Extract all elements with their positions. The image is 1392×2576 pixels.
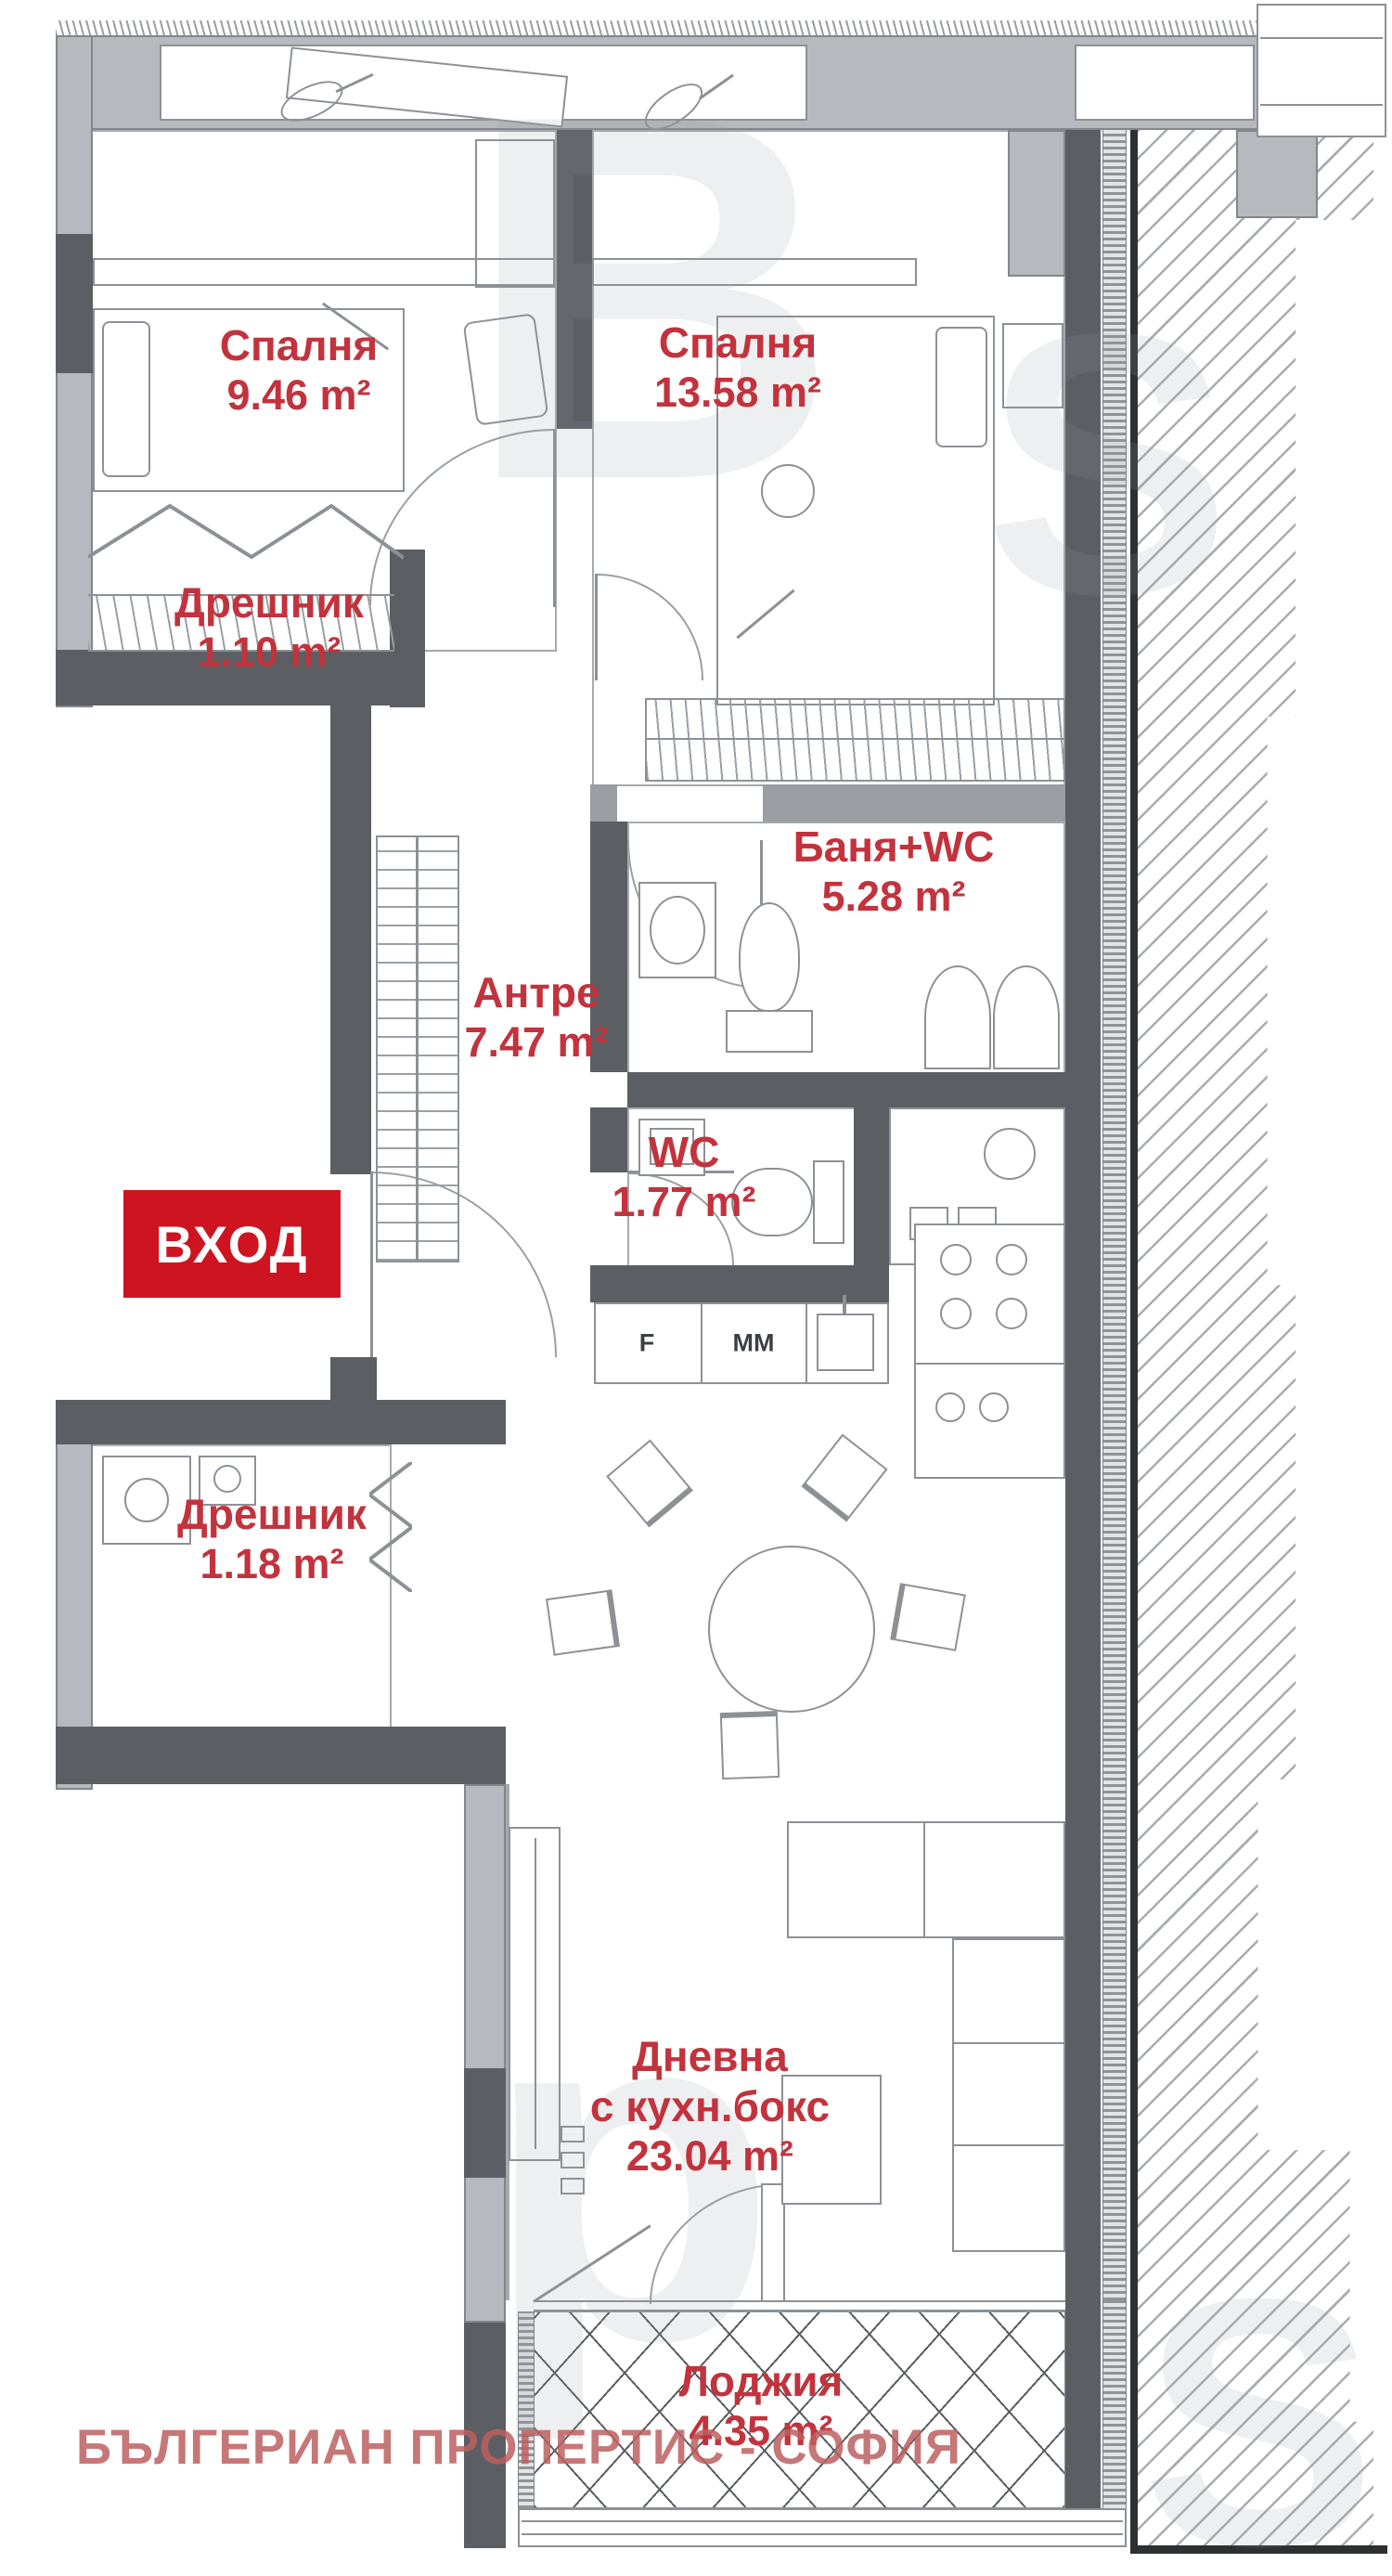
room-area: 13.58 m² — [654, 368, 821, 418]
toilet-bowl-icon — [739, 902, 800, 1012]
faucet-icon — [843, 1295, 846, 1315]
counter-divider — [701, 1302, 702, 1384]
entrance-door-leaf — [370, 1171, 373, 1357]
parapet-line — [522, 2520, 1123, 2522]
room-name: Дрешник — [177, 1489, 367, 1539]
wc-toilet-tank-icon — [813, 1160, 844, 1244]
room-name: Баня+WC — [793, 822, 995, 872]
sofa-top-section — [787, 1821, 1065, 1938]
room-area: 1.18 m² — [177, 1539, 367, 1589]
clothes-zigzag-icon — [88, 497, 404, 562]
room-name: Дневна — [590, 2031, 830, 2081]
room-name: Лоджия — [679, 2356, 844, 2406]
hall-left-exterior-wall — [330, 705, 371, 1174]
right-wall-loggia — [1065, 2300, 1101, 2544]
bedroom2-wall-block — [1008, 130, 1065, 277]
bedroom2-bath-wall-b — [763, 784, 1065, 822]
pillow-icon — [102, 321, 150, 477]
watermark-letter: S — [984, 278, 1231, 650]
chair-icon — [546, 1589, 620, 1655]
shower-curtain-icon — [993, 965, 1060, 1069]
label-hall: Антре 7.47 m² — [464, 967, 608, 1068]
wardrobe-rail-line — [645, 738, 1065, 740]
loggia-parapet-window — [518, 2508, 1127, 2547]
parapet-line — [522, 2533, 1123, 2535]
floor-plan: F MM B S p S Спалня 9.46 m² — [0, 0, 1392, 2576]
room-name: Антре — [464, 967, 608, 1017]
kitchen-sink-icon — [817, 1314, 874, 1371]
room-name: Дрешник — [174, 577, 364, 628]
sofa-right-section — [952, 1938, 1065, 2252]
label-bathroom: Баня+WC 5.28 m² — [793, 822, 995, 922]
chair-icon — [720, 1711, 780, 1780]
wardrobe-rail-icon — [645, 698, 1065, 782]
cabinet-knob — [935, 1392, 965, 1422]
stove-burner-icon — [940, 1244, 972, 1275]
room-name: Спалня — [654, 317, 821, 368]
dining-table-icon — [708, 1546, 875, 1713]
closet2-top-wall — [56, 1400, 506, 1444]
agency-watermark: БЪЛГЕРИАН ПРОПЕРТИС - СОФИЯ — [76, 2419, 961, 2476]
coat-rail-bar — [416, 835, 419, 1262]
boiler-icon — [984, 1128, 1036, 1180]
room-area: 7.47 m² — [464, 1017, 608, 1068]
shower-curtain-icon — [924, 965, 991, 1069]
entry-wall-stub — [330, 1357, 377, 1402]
room-area: 1.10 m² — [174, 628, 364, 678]
sofa-cushion-line — [923, 1821, 925, 1938]
bath-wc-divider-wall — [627, 1072, 1065, 1107]
stove-burner-icon — [940, 1298, 972, 1329]
wc-right-wall — [854, 1107, 889, 1267]
closet2-bottom-wall — [56, 1727, 506, 1784]
fridge-label: F — [639, 1329, 655, 1358]
chair-icon — [606, 1439, 693, 1527]
label-bedroom2: Спалня 13.58 m² — [654, 317, 821, 418]
watermark-letter: S — [1141, 2246, 1376, 2576]
room-name: Спалня — [220, 320, 378, 370]
neighbor-window-line — [1260, 104, 1383, 106]
bedroom2-door-leaf — [595, 574, 598, 680]
stove-burner-icon — [996, 1298, 1027, 1329]
watermark-letter: B — [464, 37, 839, 557]
room-name: WC — [612, 1127, 755, 1177]
neighbor-window-line — [1260, 37, 1383, 39]
chair-icon — [890, 1583, 966, 1651]
top-right-wall-step — [1236, 130, 1318, 218]
cabinet-knob — [979, 1392, 1009, 1422]
label-closet2: Дрешник 1.18 m² — [177, 1489, 367, 1589]
bedroom2-bath-wall-a — [590, 784, 617, 822]
chair-icon — [801, 1434, 887, 1522]
room-name: с кухн.бокс — [590, 2081, 830, 2131]
left-wall-dark-segment — [56, 234, 93, 373]
label-bedroom1: Спалня 9.46 m² — [220, 320, 378, 421]
sofa-cushion-line — [952, 2144, 1065, 2146]
label-closet1: Дрешник 1.10 m² — [174, 577, 364, 678]
sofa-cushion-line — [952, 2042, 1065, 2044]
label-wc: WC 1.77 m² — [612, 1127, 755, 1227]
entrance-badge-text: ВХОД — [156, 1214, 309, 1275]
window-bedroom2 — [1075, 45, 1255, 121]
microwave-label: MM — [733, 1329, 775, 1358]
label-living: Дневна с кухн.бокс 23.04 m² — [590, 2031, 830, 2181]
stove-burner-icon — [996, 1244, 1027, 1275]
pillow-icon — [935, 327, 987, 447]
kitchen-right-counter — [914, 1223, 1065, 1479]
room-area: 1.77 m² — [612, 1177, 755, 1227]
room-area: 5.28 m² — [793, 872, 995, 922]
accordion-door-icon — [369, 1462, 412, 1592]
entrance-badge: ВХОД — [123, 1190, 341, 1298]
right-wall-loggia-insulation — [1102, 2300, 1127, 2544]
counter-divider — [914, 1363, 1065, 1365]
washing-machine-drum — [124, 1478, 169, 1522]
sink-basin — [650, 896, 705, 964]
counter-divider — [806, 1302, 807, 1384]
room-area: 9.46 m² — [220, 370, 378, 421]
room-area: 23.04 m² — [590, 2131, 830, 2181]
neighbor-window — [1257, 4, 1386, 137]
toilet-tank-icon — [726, 1010, 813, 1053]
